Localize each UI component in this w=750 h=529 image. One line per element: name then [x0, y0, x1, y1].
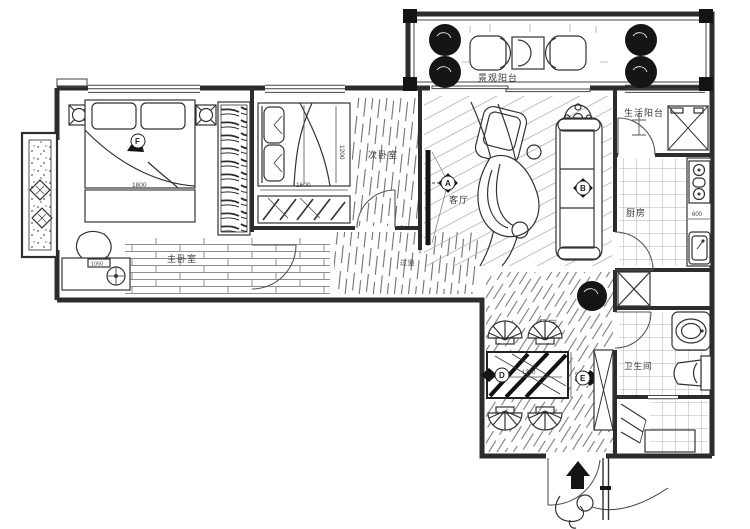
dim-desk: 1050 [91, 262, 103, 268]
life-balcony-label: 生活阳台 [624, 107, 664, 118]
person-figure [556, 488, 668, 528]
entry [548, 458, 668, 528]
marker-d-letter: D [499, 371, 505, 380]
master-bed [85, 100, 195, 222]
dim-second-bed-wid: 1200 [338, 145, 345, 160]
marker-f-letter: F [135, 137, 140, 146]
bay-window [22, 133, 57, 257]
plant-icon [577, 281, 607, 311]
life-balcony-door [618, 118, 655, 155]
shoe-cabinet [594, 350, 613, 430]
dim-second-bed-len: 1600 [296, 182, 311, 189]
washing-machine [668, 106, 708, 150]
shower-floor [650, 401, 708, 453]
floor-plan-svg: 景观阳台 F 1800 [0, 0, 750, 529]
second-bedroom-floor [352, 98, 418, 226]
wardrobe [218, 102, 250, 235]
floor-plan-canvas: 景观阳台 F 1800 [0, 0, 750, 529]
hallway-label: 过道 [400, 258, 415, 267]
marker-e-letter: E [580, 374, 586, 383]
second-bedroom-label: 次卧室 [368, 149, 398, 160]
dim-kitchen-counter: 600 [692, 212, 703, 218]
utility-cabinet [618, 272, 650, 306]
living-room-label: 客厅 [449, 194, 469, 205]
balcony-table-icon [512, 37, 544, 69]
tv [426, 150, 431, 245]
entry-railing [600, 458, 611, 520]
desk: 1050 [62, 231, 130, 290]
kitchen-label: 厨房 [626, 207, 646, 218]
marker-a-letter: A [445, 179, 451, 188]
bathroom-label: 卫生间 [624, 361, 653, 371]
bathroom-sink [672, 312, 710, 350]
master-wood-floor [125, 238, 330, 294]
life-balcony: 生活阳台 [618, 106, 708, 155]
dresser [258, 196, 350, 223]
master-bedroom-label: 主卧室 [167, 253, 197, 264]
dim-master-bed: 1800 [132, 182, 147, 189]
scenic-balcony: 景观阳台 [403, 9, 713, 91]
marker-b-letter: B [580, 184, 586, 193]
entry-arrow-icon [566, 461, 590, 489]
scenic-balcony-label: 景观阳台 [478, 72, 518, 83]
dim-table-len: 1300 [522, 370, 536, 376]
